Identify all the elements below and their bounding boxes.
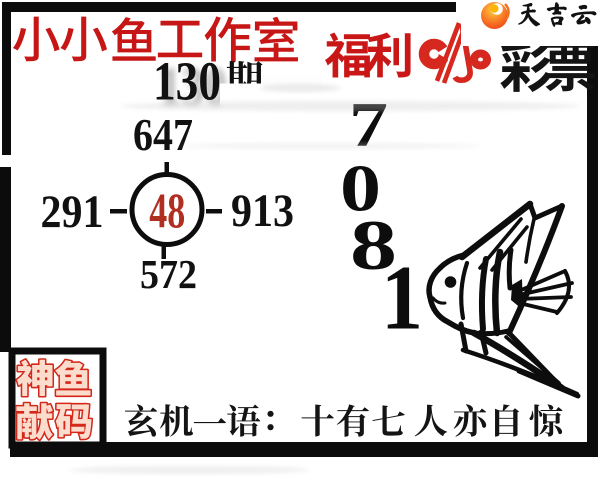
svg-text:647: 647 [133, 110, 193, 160]
svg-text:1: 1 [381, 246, 423, 348]
svg-text:48: 48 [149, 182, 185, 238]
svg-text:572: 572 [140, 251, 197, 297]
svg-text:913: 913 [231, 185, 294, 237]
svg-text:7: 7 [349, 89, 388, 160]
svg-text:291: 291 [41, 186, 104, 238]
